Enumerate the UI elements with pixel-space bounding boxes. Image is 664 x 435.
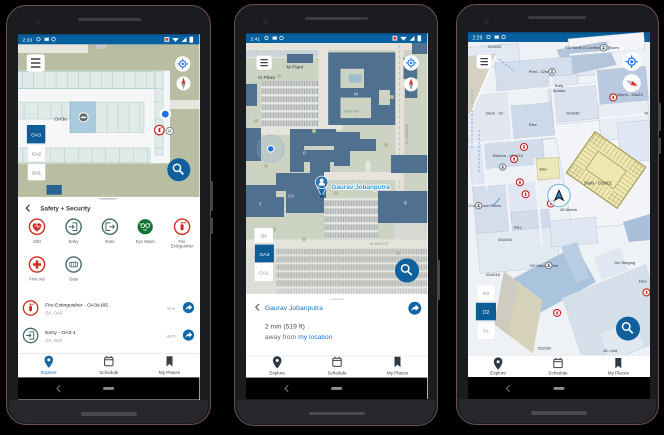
svg-text:OA2: OA2 [32,152,42,157]
svg-text:OA: OA [288,194,294,199]
svg-text:Extinguisher: Extinguisher [171,244,195,249]
svg-text:O Plant: O Plant [259,75,276,81]
svg-text:2:33: 2:33 [23,38,33,44]
svg-text:O1: O1 [482,329,489,334]
svg-text:Elec: Elec [639,279,647,284]
svg-text:away from my location: away from my location [265,334,333,341]
svg-text:2:41: 2:41 [251,37,261,43]
svg-text:02n020: 02n020 [488,44,502,49]
svg-text:Deck - 02: Deck - 02 [486,111,504,116]
svg-text:D: D [303,151,306,156]
svg-text:Elec: Elec [514,225,522,230]
svg-text:Sparks: Sparks [552,88,564,93]
svg-text:Conference Room: Conference Room [468,203,501,208]
svg-text:O3: O3 [482,291,489,296]
svg-text:Gaurav Jobanputra: Gaurav Jobanputra [332,184,391,191]
svg-text:OA, OA3: OA, OA3 [45,338,62,343]
svg-text:02w015: 02w015 [485,272,500,277]
svg-text:43 ft: 43 ft [167,334,176,339]
svg-text:*02 North A Conference Room: *02 North A Conference Room [565,45,619,50]
svg-text:02 Atrium: 02 Atrium [560,207,578,212]
svg-text:OA3e: OA3e [55,117,68,123]
svg-text:W: W [644,111,648,116]
svg-text:First Aid: First Aid [30,277,46,282]
svg-text:Elev: Elev [539,167,547,172]
svg-text:02w010: 02w010 [498,237,513,242]
svg-text:Srv Staging: Srv Staging [614,260,635,265]
svg-text:Safety + Security: Safety + Security [41,206,92,213]
svg-text:37 ft: 37 ft [167,306,176,311]
svg-text:OA3: OA3 [31,133,41,139]
svg-text:M Plant: M Plant [287,65,305,71]
svg-text:W 43472 ST: W 43472 ST [370,242,389,246]
svg-text:M: M [354,92,358,97]
svg-text:02s080: 02s080 [537,346,551,351]
svg-text:Exits: Exits [106,239,115,244]
svg-text:Tuttle Pon: Tuttle Pon [344,110,360,114]
svg-text:Schedule: Schedule [328,371,348,376]
svg-text:OA1: OA1 [32,171,42,176]
svg-text:O2: O2 [482,310,489,316]
svg-text:Schedule: Schedule [100,370,120,375]
svg-text:Explore: Explore [490,371,506,376]
svg-text:ACMEWAY ST: ACMEWAY ST [405,124,409,145]
svg-text:Q: Q [404,200,408,205]
svg-text:OA3: OA3 [260,252,270,258]
svg-text:Q8: Q8 [261,234,268,239]
svg-text:AED: AED [33,239,42,244]
svg-text:My Places: My Places [387,371,409,376]
svg-text:OA2: OA2 [259,271,269,276]
svg-text:Gate: Gate [69,277,79,282]
svg-text:AC Unit: AC Unit [603,348,618,353]
svg-text:My Places: My Places [607,371,629,376]
svg-text:02a430: 02a430 [566,111,580,116]
svg-text:Schedule: Schedule [548,371,568,376]
svg-text:Stairs - 02x002: Stairs - 02x002 [583,181,612,186]
svg-text:OA, OA3: OA, OA3 [45,311,62,316]
svg-text:Sully: Sully [554,83,563,88]
svg-text:Entry - OA3-1: Entry - OA3-1 [45,330,76,336]
svg-text:2 min (519 ft): 2 min (519 ft) [265,324,305,331]
svg-text:2:29: 2:29 [472,36,482,42]
svg-text:Entry: Entry [69,239,80,244]
svg-text:Eye Wash: Eye Wash [136,239,156,244]
svg-text:J: J [259,201,261,206]
svg-text:Gaurav Jobanputra: Gaurav Jobanputra [265,305,323,312]
svg-text:Fire Extinguisher - OA3e165: Fire Extinguisher - OA3e165 [45,303,108,309]
svg-text:*02 Atrium West: *02 Atrium West [529,263,558,268]
svg-text:Explore: Explore [270,371,286,376]
svg-text:Kitchen - 02a510: Kitchen - 02a510 [492,153,523,158]
svg-text:Men's - 02a33: Men's - 02a33 [617,92,643,97]
svg-text:Elec: Elec [529,122,537,127]
svg-text:Explore: Explore [41,370,57,375]
svg-text:My Places: My Places [159,370,181,375]
